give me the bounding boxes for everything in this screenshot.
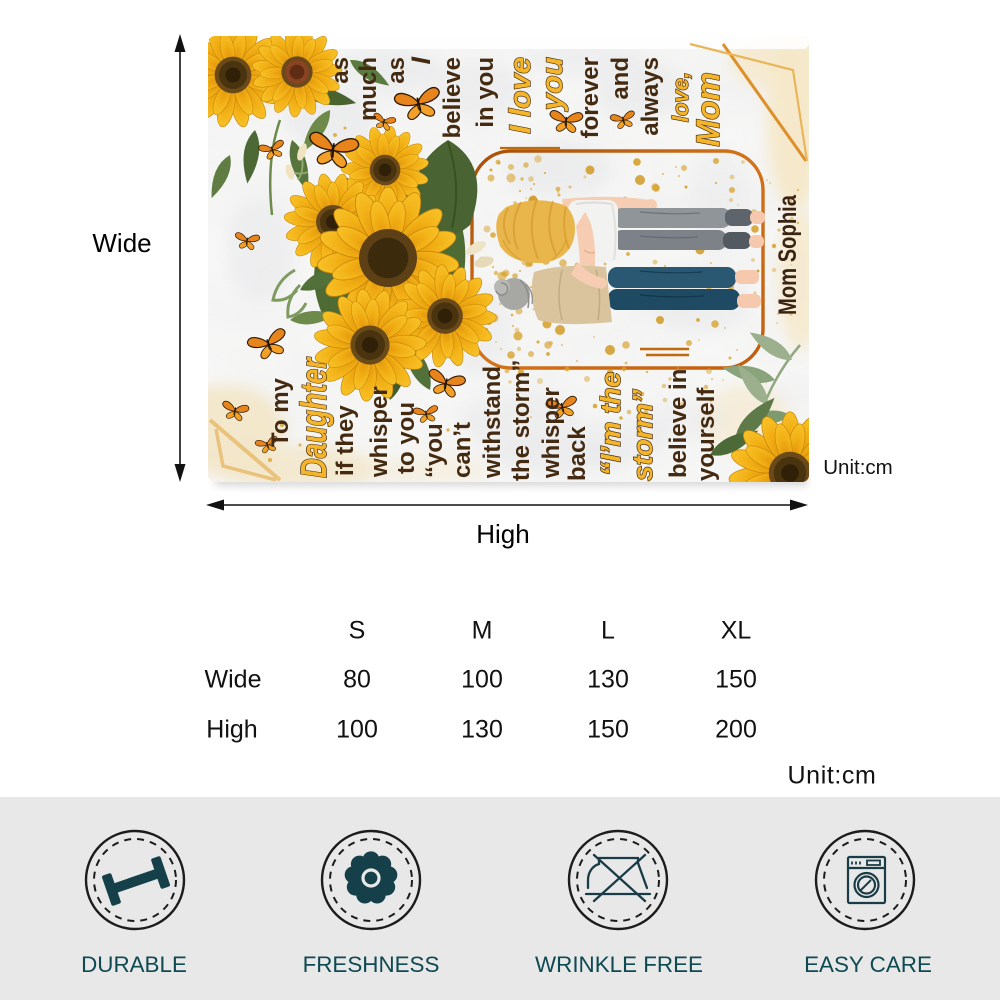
svg-text:believe: believe <box>439 57 466 138</box>
svg-text:in you: in you <box>472 57 499 128</box>
svg-text:always: always <box>637 57 664 136</box>
svg-text:Daughter: Daughter <box>293 356 334 478</box>
svg-text:forever: forever <box>577 57 604 138</box>
svg-text:Mom Sophia: Mom Sophia <box>774 194 802 315</box>
svg-text:much: much <box>355 57 382 121</box>
svg-text:if they: if they <box>332 405 359 476</box>
svg-text:and: and <box>607 57 634 100</box>
svg-text:whisper: whisper <box>538 387 565 479</box>
svg-text:to you: to you <box>393 402 420 474</box>
svg-text:yourself: yourself <box>693 387 720 481</box>
svg-text:“I’m the: “I’m the <box>595 372 626 476</box>
svg-text:you: you <box>536 57 569 112</box>
svg-text:Wide: Wide <box>92 228 151 258</box>
svg-text:back: back <box>564 426 591 481</box>
svg-text:as: as <box>327 57 354 84</box>
svg-text:can’t: can’t <box>449 422 476 478</box>
svg-text:“you: “you <box>421 423 448 478</box>
svg-text:believe in: believe in <box>665 369 692 478</box>
svg-text:Unit:cm: Unit:cm <box>823 456 892 479</box>
svg-text:Mom: Mom <box>690 72 726 147</box>
svg-text:withstand: withstand <box>479 366 506 479</box>
svg-text:I love: I love <box>504 57 537 134</box>
svg-text:whisper: whisper <box>366 386 393 478</box>
svg-text:To my: To my <box>267 377 294 447</box>
svg-text:the storm”: the storm” <box>508 360 535 481</box>
svg-text:High: High <box>476 519 529 549</box>
svg-text:I: I <box>406 57 436 65</box>
svg-text:storm”: storm” <box>627 389 658 481</box>
